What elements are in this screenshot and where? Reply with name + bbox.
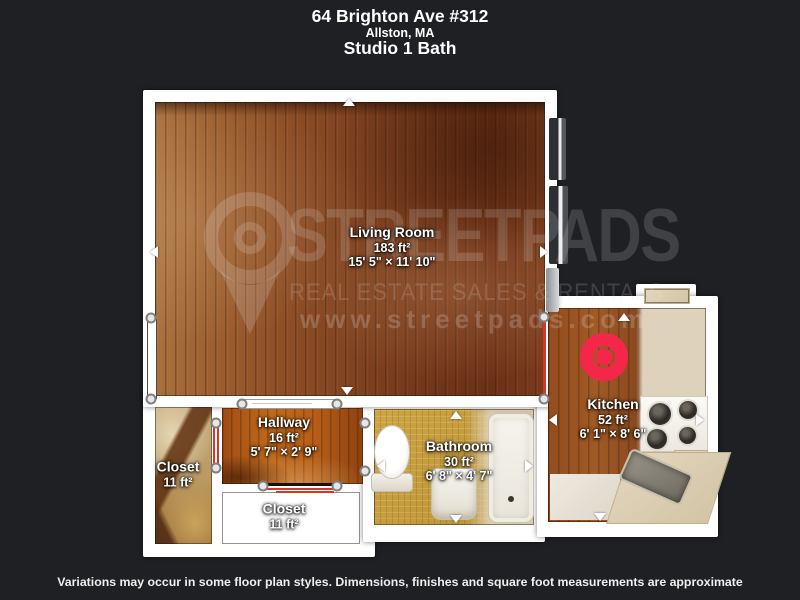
scan-artifact-window-3 xyxy=(546,268,559,312)
room-name: Closet xyxy=(263,500,306,517)
wall-node xyxy=(539,394,550,405)
room-dims: 15' 5" × 11' 10" xyxy=(349,255,436,270)
wall-node xyxy=(211,418,222,429)
room-area: 11 ft² xyxy=(263,517,306,532)
view-direction-icon xyxy=(150,246,158,258)
door-marker-red xyxy=(217,425,219,467)
view-direction-icon xyxy=(341,387,353,395)
wall-node xyxy=(539,312,550,323)
stove-burner xyxy=(647,429,667,449)
view-direction-icon xyxy=(540,246,548,258)
door-marker-red xyxy=(543,318,546,399)
wall-node xyxy=(211,463,222,474)
wall-node xyxy=(332,399,343,410)
wall-node xyxy=(237,399,248,410)
door-marker-red xyxy=(264,488,336,490)
view-direction-icon xyxy=(594,513,606,521)
wall-node xyxy=(258,481,269,492)
camera-position-dot xyxy=(596,349,613,366)
camera-position-marker xyxy=(580,333,628,381)
wall-node xyxy=(360,418,371,429)
window-marker xyxy=(147,319,157,399)
view-direction-icon xyxy=(549,414,557,426)
view-direction-icon xyxy=(377,460,385,472)
room-area: 52 ft² xyxy=(580,413,647,428)
wall-node xyxy=(332,481,343,492)
scan-artifact-window-2 xyxy=(549,186,568,264)
view-direction-icon xyxy=(450,411,462,419)
door-opening-line xyxy=(252,403,312,405)
kitchen-window-counter xyxy=(644,288,690,304)
view-direction-icon xyxy=(696,414,704,426)
wall-node xyxy=(146,313,157,324)
door-marker-red xyxy=(213,425,215,467)
view-direction-icon xyxy=(618,313,630,321)
wall-node xyxy=(360,466,371,477)
room-area: 30 ft² xyxy=(426,455,493,470)
listing-unit-type: Studio 1 Bath xyxy=(0,39,800,58)
room-dims: 6' 1" × 8' 6" xyxy=(580,427,647,442)
door-opening-hallway xyxy=(242,399,337,409)
bathtub-drain xyxy=(508,496,514,502)
view-direction-icon xyxy=(343,98,355,106)
room-name: Closet xyxy=(157,458,200,475)
view-direction-icon xyxy=(525,460,533,472)
listing-header: 64 Brighton Ave #312 Allston, MA Studio … xyxy=(0,6,800,58)
wall-node xyxy=(146,394,157,405)
listing-address: 64 Brighton Ave #312 xyxy=(0,6,800,27)
room-label-hallway: Hallway 16 ft² 5' 7" × 2' 9" xyxy=(251,414,318,460)
stove-burner xyxy=(679,401,697,419)
room-label-kitchen: Kitchen 52 ft² 6' 1" × 8' 6" xyxy=(580,396,647,442)
room-area: 16 ft² xyxy=(251,431,318,446)
scan-artifact-window-1 xyxy=(549,118,566,180)
room-label-closet-bottom: Closet 11 ft² xyxy=(263,500,306,531)
stove-burner xyxy=(649,403,671,425)
view-direction-icon xyxy=(450,515,462,523)
stove-burner xyxy=(679,427,696,444)
room-area: 183 ft² xyxy=(349,241,436,256)
room-name: Living Room xyxy=(349,224,436,241)
room-name: Hallway xyxy=(251,414,318,431)
floorplan-page: 64 Brighton Ave #312 Allston, MA Studio … xyxy=(0,0,800,600)
door-marker-black xyxy=(264,483,336,486)
door-marker-red xyxy=(276,491,334,493)
room-label-bathroom: Bathroom 30 ft² 6' 8" × 4' 7" xyxy=(426,438,493,484)
room-dims: 5' 7" × 2' 9" xyxy=(251,445,318,460)
room-name: Kitchen xyxy=(580,396,647,413)
room-label-closet-left: Closet 11 ft² xyxy=(157,458,200,489)
room-label-living-room: Living Room 183 ft² 15' 5" × 11' 10" xyxy=(349,224,436,270)
room-name: Bathroom xyxy=(426,438,493,455)
room-area: 11 ft² xyxy=(157,475,200,490)
disclaimer-text: Variations may occur in some floor plan … xyxy=(0,575,800,589)
room-dims: 6' 8" × 4' 7" xyxy=(426,469,493,484)
